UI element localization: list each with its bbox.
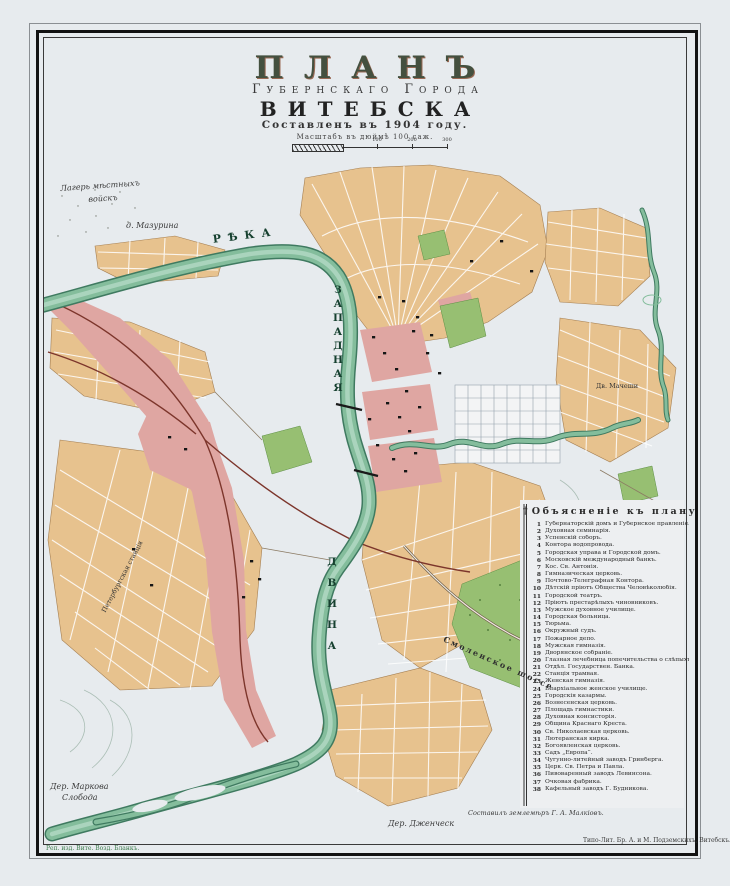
legend-item-number: 36 [531, 771, 541, 778]
legend-item-number: 5 [531, 550, 541, 557]
legend-item-label: Кос. Св. Антонія. [545, 564, 598, 571]
river-letter: А [333, 297, 343, 311]
legend-item-label: Епархіальное женское училище. [545, 686, 648, 693]
legend-item-number: 9 [531, 578, 541, 585]
river-letter: Я [333, 381, 343, 395]
legend-item: 4Контора водопровода. [531, 542, 689, 549]
legend-item-label: Губернаторскій домъ и Губернское правлен… [545, 521, 689, 528]
legend-item: 16Окружный судъ. [531, 628, 689, 635]
legend-item-label: Чугунно-литейный заводъ Гринберга. [545, 757, 663, 764]
legend-item-number: 7 [531, 564, 541, 571]
legend-item: 33Садъ „Европа“. [531, 750, 689, 757]
legend-item: 9Почтово-Телеграфная Контора. [531, 578, 689, 585]
legend-ornament-icon: † [523, 506, 528, 517]
legend-item-number: 34 [531, 757, 541, 764]
legend-item-label: Московскій международный банкъ. [545, 557, 657, 564]
legend-item: 36Пивоваренный заводъ Левинсона. [531, 771, 689, 778]
map-label: ЗАПАДНАЯ [333, 283, 343, 395]
legend-item-label: Городскія казармы. [545, 693, 607, 700]
legend-item-label: Церк. Св. Петра и Павла. [545, 764, 624, 771]
legend-item-label: Мужское духовное училище. [545, 607, 636, 614]
legend-item-number: 12 [531, 600, 541, 607]
legend-item: 5Городская управа и Городской домъ. [531, 550, 689, 557]
legend-item-number: 18 [531, 643, 541, 650]
legend-item-number: 19 [531, 650, 541, 657]
river-letter: Н [333, 353, 343, 367]
library-stamp: Реп. изд. Вите. Возд. Бланкъ. [46, 845, 139, 852]
legend-item: 21Отдѣл. Государствен. Банка. [531, 664, 689, 671]
legend-item-label: Глазная лечебница попечительства о слѣпы… [545, 657, 689, 664]
legend-item: 12Пріютъ престарѣлыхъ чиновниковъ. [531, 600, 689, 607]
scale-tick-label: 100 [372, 137, 382, 143]
map-title: ПЛАНЪ [0, 50, 730, 86]
map-label: Дв. Мачеши [596, 382, 638, 390]
map-label: Слобода [62, 793, 98, 802]
legend-item-number: 3 [531, 535, 541, 542]
legend-item: 8Гимназическая церковь. [531, 571, 689, 578]
scale-caption: Масштабъ въ дюймѣ 100 саж. [0, 133, 730, 141]
river-letter: В [327, 573, 337, 594]
legend-item-label: Площадь гимнастики. [545, 707, 614, 714]
map-subtitle: Губернскаго Города [0, 82, 730, 97]
legend-item: 7Кос. Св. Антонія. [531, 564, 689, 571]
legend-item-number: 25 [531, 693, 541, 700]
legend-item-label: Кафельный заводъ Г. Будникова. [545, 786, 648, 793]
legend-item-label: Тюрьма. [545, 621, 571, 628]
legend-item-number: 10 [531, 585, 541, 592]
legend-item-number: 17 [531, 636, 541, 643]
legend-item-number: 11 [531, 593, 541, 600]
legend-item: 20Глазная лечебница попечительства о слѣ… [531, 657, 689, 664]
legend-item: 13Мужское духовное училище. [531, 607, 689, 614]
legend-item-number: 6 [531, 557, 541, 564]
legend-item-label: Богоявленская церковь. [545, 743, 620, 750]
legend-item-number: 28 [531, 714, 541, 721]
legend-item-number: 30 [531, 729, 541, 736]
legend-item-number: 21 [531, 664, 541, 671]
map-compiled-note: Составленъ въ 1904 году. [0, 119, 730, 131]
legend-item-number: 35 [531, 764, 541, 771]
legend-item-label: Гимназическая церковь. [545, 571, 622, 578]
river-letter: А [333, 367, 343, 381]
legend-item-label: Пожарное депо. [545, 636, 596, 643]
legend-item-number: 38 [531, 786, 541, 793]
legend-item-label: Почтово-Телеграфная Контора. [545, 578, 644, 585]
river-letter: А [333, 325, 343, 339]
legend-item-label: Городская управа и Городской домъ. [545, 550, 661, 557]
legend-item: 38Кафельный заводъ Г. Будникова. [531, 786, 689, 793]
map-city-name: ВИТЕБСКА [0, 97, 730, 121]
legend-item-label: Мужская гимназія. [545, 643, 606, 650]
legend-item-label: Окружный судъ. [545, 628, 597, 635]
legend-item: 2Духовная семинарія. [531, 528, 689, 535]
legend-item: 30Св. Николаевская церковь. [531, 729, 689, 736]
scale-tick [377, 144, 378, 149]
legend-panel: † Объясненіе къ плану 1Губернаторскій до… [531, 506, 689, 793]
legend-item: 24Епархіальное женское училище. [531, 686, 689, 693]
legend-item-label: Станція трамвая. [545, 671, 599, 678]
river-letter: А [327, 636, 337, 657]
legend-item-number: 33 [531, 750, 541, 757]
legend-item: 35Церк. Св. Петра и Павла. [531, 764, 689, 771]
legend-item-label: Городской театръ. [545, 593, 603, 600]
legend-title: Объясненіе къ плану [532, 506, 697, 517]
map-page: ПЛАНЪ Губернскаго Города ВИТЕБСКА Состав… [0, 0, 730, 886]
legend-item: 14Городская больница. [531, 614, 689, 621]
legend-item-label: Лютеранская кирка. [545, 736, 610, 743]
river-letter: И [327, 594, 337, 615]
legend-item-label: Отдѣл. Государствен. Банка. [545, 664, 635, 671]
scale-bar-line [342, 147, 448, 148]
legend-item: 18Мужская гимназія. [531, 643, 689, 650]
legend-item: 31Лютеранская кирка. [531, 736, 689, 743]
legend-item-number: 31 [531, 736, 541, 743]
legend-item: 11Городской театръ. [531, 593, 689, 600]
legend-item-number: 1 [531, 521, 541, 528]
legend-item-label: Контора водопровода. [545, 542, 614, 549]
legend-item-label: Пивоваренный заводъ Левинсона. [545, 771, 652, 778]
legend-item: 26Вознесенская церковь. [531, 700, 689, 707]
legend-item-number: 37 [531, 779, 541, 786]
legend-item-label: Духовная семинарія. [545, 528, 610, 535]
legend-item: 37Очковая фабрика. [531, 779, 689, 786]
legend-item-label: Успенскій соборъ. [545, 535, 602, 542]
legend-item-number: 15 [531, 621, 541, 628]
legend-item: 17Пожарное депо. [531, 636, 689, 643]
scale-bar-hatch [292, 144, 344, 152]
legend-item: 34Чугунно-литейный заводъ Гринберга. [531, 757, 689, 764]
river-letter: З [333, 283, 343, 297]
legend-item: 28Духовная консисторія. [531, 714, 689, 721]
scale-tick [412, 144, 413, 149]
legend-item: 25Городскія казармы. [531, 693, 689, 700]
legend-item-number: 2 [531, 528, 541, 535]
legend-item: 19Дворянское собраніе. [531, 650, 689, 657]
legend-item: 15Тюрьма. [531, 621, 689, 628]
river-letter: Д [327, 552, 337, 573]
legend-header: † Объясненіе къ плану [531, 506, 689, 517]
legend-item-number: 26 [531, 700, 541, 707]
legend-item-label: Дѣтскій пріютъ Общества Человѣколюбія. [545, 585, 677, 592]
legend-item-label: Св. Николаевская церковь. [545, 729, 630, 736]
legend-item: 32Богоявленская церковь. [531, 743, 689, 750]
map-label: Дер. Маркова [50, 782, 109, 791]
legend-item-label: Садъ „Европа“. [545, 750, 593, 757]
legend-item: 1Губернаторскій домъ и Губернское правле… [531, 521, 689, 528]
legend-item-number: 4 [531, 542, 541, 549]
river-letter: Д [333, 339, 343, 353]
map-label: ДВИНА [327, 552, 337, 657]
surveyor-credit: Составилъ землемѣръ Г. А. Малкіовъ. [468, 809, 604, 817]
legend-item: 10Дѣтскій пріютъ Общества Человѣколюбія. [531, 585, 689, 592]
legend-item-label: Пріютъ престарѣлыхъ чиновниковъ. [545, 600, 658, 607]
legend-item-label: Духовная консисторія. [545, 714, 616, 721]
legend-item-number: 20 [531, 657, 541, 664]
legend-item-label: Дворянское собраніе. [545, 650, 613, 657]
river-letter: Н [327, 615, 337, 636]
legend-item-number: 27 [531, 707, 541, 714]
scale-tick-label: 300 [442, 137, 452, 143]
scale-tick [447, 144, 448, 149]
legend-item-label: Вознесенская церковь. [545, 700, 617, 707]
legend-item: 3Успенскій соборъ. [531, 535, 689, 542]
map-label: д. Мазурина [126, 221, 178, 230]
legend-item-number: 16 [531, 628, 541, 635]
legend-item-number: 8 [531, 571, 541, 578]
legend-item-number: 29 [531, 721, 541, 728]
legend-item-label: Городская больница. [545, 614, 611, 621]
legend-item: 6Московскій международный банкъ. [531, 557, 689, 564]
printer-credit: Типо-Лит. Бр. А. и М. Подземскихъ, Витеб… [583, 837, 730, 844]
legend-item-label: Очковая фабрика. [545, 779, 602, 786]
river-letter: П [333, 311, 343, 325]
scale-bar: 100200300 [292, 142, 450, 154]
legend-list: 1Губернаторскій домъ и Губернское правле… [531, 521, 689, 793]
legend-item-number: 13 [531, 607, 541, 614]
scale-tick-label: 200 [407, 137, 417, 143]
map-label: Дер. Дженческ [388, 819, 454, 828]
legend-item: 29Община Краснаго Креста. [531, 721, 689, 728]
legend-item: 27Площадь гимнастики. [531, 707, 689, 714]
legend-item: 22Станція трамвая. [531, 671, 689, 678]
legend-item-number: 32 [531, 743, 541, 750]
legend-item-label: Община Краснаго Креста. [545, 721, 627, 728]
legend-item-number: 14 [531, 614, 541, 621]
